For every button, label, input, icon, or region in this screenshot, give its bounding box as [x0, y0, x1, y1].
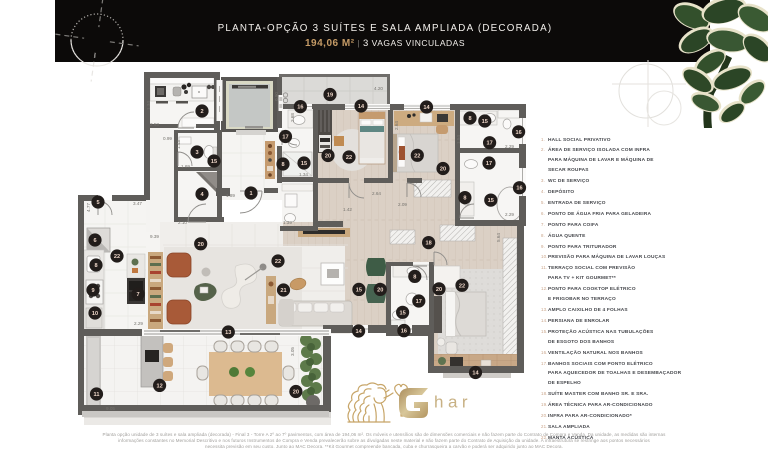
svg-text:6: 6: [93, 238, 96, 244]
svg-text:9.05: 9.05: [106, 406, 115, 411]
svg-text:15: 15: [301, 161, 307, 167]
svg-text:1.39: 1.39: [283, 220, 292, 225]
svg-text:5: 5: [96, 200, 99, 206]
svg-text:20: 20: [377, 287, 383, 293]
svg-text:2: 2: [200, 109, 203, 115]
svg-text:8: 8: [468, 116, 471, 122]
svg-text:12: 12: [156, 383, 162, 389]
svg-text:8: 8: [281, 162, 284, 168]
svg-text:22: 22: [275, 259, 281, 265]
svg-text:1.34: 1.34: [146, 101, 151, 110]
svg-text:3.05: 3.05: [290, 347, 295, 356]
svg-text:20: 20: [440, 167, 446, 173]
svg-text:15: 15: [399, 310, 405, 316]
svg-text:1: 1: [249, 191, 252, 197]
svg-text:3.47: 3.47: [133, 201, 142, 206]
svg-text:2.29: 2.29: [505, 144, 514, 149]
svg-text:21: 21: [280, 288, 286, 294]
svg-text:3: 3: [195, 150, 198, 156]
svg-text:16: 16: [516, 186, 522, 192]
svg-text:1.42: 1.42: [343, 207, 352, 212]
svg-text:11: 11: [94, 392, 100, 398]
svg-text:8: 8: [463, 196, 466, 202]
svg-text:2.53: 2.53: [150, 122, 159, 127]
svg-text:2.29: 2.29: [134, 321, 143, 326]
svg-text:0.90: 0.90: [274, 92, 279, 101]
svg-text:2.64: 2.64: [394, 121, 399, 130]
svg-text:16: 16: [401, 329, 407, 335]
svg-text:14: 14: [355, 329, 362, 335]
svg-text:2.68: 2.68: [290, 113, 295, 122]
svg-text:22: 22: [459, 283, 465, 289]
svg-text:17: 17: [486, 161, 492, 167]
svg-text:4.20: 4.20: [374, 86, 383, 91]
svg-text:19: 19: [327, 93, 333, 99]
svg-text:17: 17: [282, 135, 288, 141]
svg-text:15: 15: [488, 198, 494, 204]
svg-text:8: 8: [413, 274, 416, 280]
svg-text:2.29: 2.29: [505, 212, 514, 217]
svg-text:9: 9: [91, 288, 94, 294]
svg-text:20: 20: [436, 287, 442, 293]
svg-text:22: 22: [346, 155, 352, 161]
svg-text:2.09: 2.09: [398, 202, 407, 207]
svg-text:16: 16: [297, 105, 303, 111]
svg-text:1.89: 1.89: [226, 193, 235, 198]
svg-text:20: 20: [198, 242, 204, 248]
svg-text:1.54: 1.54: [456, 135, 461, 144]
svg-text:1.34: 1.34: [299, 172, 308, 177]
svg-text:9.39: 9.39: [150, 234, 159, 239]
svg-text:16: 16: [515, 130, 521, 136]
svg-text:17: 17: [416, 299, 422, 305]
svg-text:10: 10: [92, 311, 98, 317]
svg-text:20: 20: [293, 390, 299, 396]
svg-text:0.99: 0.99: [163, 136, 172, 141]
svg-text:2.10: 2.10: [178, 220, 187, 225]
svg-text:4.77: 4.77: [86, 203, 91, 212]
svg-text:2.64: 2.64: [372, 191, 381, 196]
svg-text:14: 14: [423, 105, 430, 111]
svg-text:15: 15: [482, 119, 488, 125]
svg-text:17: 17: [486, 141, 492, 147]
svg-text:22: 22: [114, 254, 120, 260]
svg-text:1.43: 1.43: [176, 140, 181, 149]
svg-text:14: 14: [358, 104, 365, 110]
svg-text:1.69: 1.69: [181, 164, 190, 169]
svg-text:22: 22: [414, 153, 420, 159]
svg-text:14: 14: [472, 371, 479, 377]
svg-text:13: 13: [225, 330, 231, 336]
svg-text:8: 8: [94, 263, 97, 269]
svg-text:15: 15: [356, 287, 362, 293]
svg-text:15: 15: [211, 159, 217, 165]
svg-text:18: 18: [425, 241, 431, 247]
svg-text:7: 7: [136, 292, 139, 298]
svg-text:5.64: 5.64: [496, 233, 501, 242]
svg-text:har: har: [434, 393, 472, 412]
svg-text:20: 20: [325, 154, 331, 160]
